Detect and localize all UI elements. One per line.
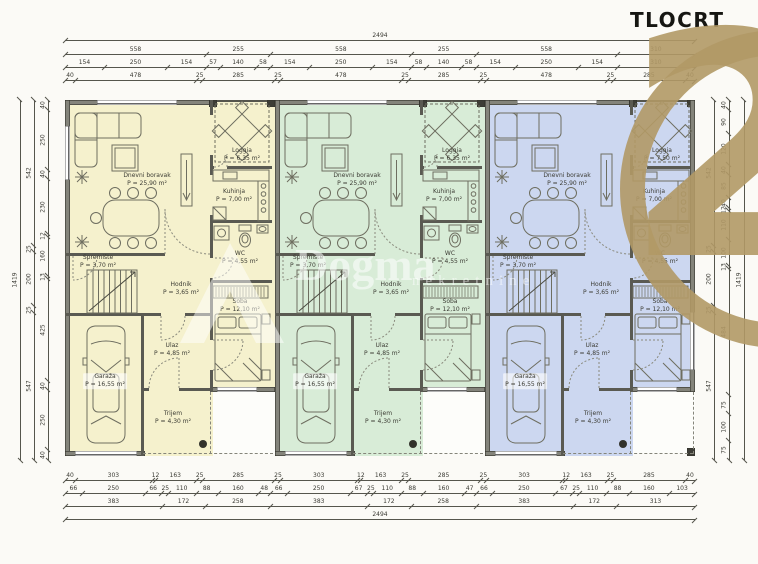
dimension-segment: 57: [206, 57, 220, 68]
sofa-icon: [285, 113, 351, 167]
room-area: P = 3,70 m²: [290, 262, 326, 269]
room-name: Dnevni boravak: [543, 172, 590, 180]
dimension-label: 303: [280, 472, 357, 479]
room-label-garaza: GaražaP = 16,55 m²: [503, 373, 547, 389]
dimension-column: 5422520025547: [24, 100, 35, 460]
dimension-label: 1419: [736, 272, 743, 287]
dimension-column: 5422520025547: [704, 100, 715, 460]
room-area: P = 25,90 m²: [547, 180, 587, 187]
dimension-segment: 303: [280, 470, 357, 481]
dimension-label: 75: [721, 446, 728, 454]
dimension-label: 547: [706, 381, 713, 392]
floor-plan-sheet: TLOCRT: [0, 0, 758, 564]
dimension-label: 172: [573, 498, 616, 505]
room-area: P = 25,90 m²: [127, 180, 167, 187]
dimension-segment: 478: [280, 70, 401, 81]
dimension-segment: 285: [408, 70, 480, 81]
room-area: P = 4,55 m²: [432, 258, 468, 265]
plant-icon: [495, 235, 509, 249]
room-label-loggia: LoggiaP = 7,50 m²: [644, 147, 680, 163]
dimension-segment: 160: [38, 237, 49, 275]
dimension-label: 100: [721, 422, 728, 433]
dimension-label: 172: [367, 498, 410, 505]
room-label-soba: SobaP = 12,10 m²: [220, 298, 260, 314]
dimension-label: 285: [613, 72, 685, 79]
dimension-label: 484: [721, 326, 728, 337]
dimension-label: 140: [426, 59, 461, 66]
dimension-label: 40: [40, 451, 47, 459]
bed-icon: [215, 314, 270, 381]
dimension-label: 285: [202, 72, 274, 79]
unit-c: Dnevni boravakP = 25,90 m²LoggiaP = 7,50…: [485, 100, 695, 460]
dimension-label: 110: [168, 485, 196, 492]
room-name: Soba: [640, 298, 680, 306]
dimension-segment: 90: [719, 110, 730, 133]
dimension-label: 258: [205, 498, 270, 505]
wardrobe-icon: [213, 286, 268, 298]
dimension-segment: 40: [65, 470, 75, 481]
dimension-label: 163: [155, 472, 196, 479]
sofa-icon: [495, 113, 561, 167]
dimension-label: 425: [40, 324, 47, 335]
dimension-segment: 66: [145, 483, 162, 494]
dimension-segment: 160: [423, 483, 463, 494]
room-label-kuhinja: KuhinjaP = 7,00 m²: [426, 188, 462, 204]
dimension-segment: 100: [719, 240, 730, 266]
dimension-label: 154: [65, 59, 104, 66]
dimension-row: 6625066251108816048662506725110881604766…: [65, 483, 695, 494]
dimension-segment: 88: [606, 483, 628, 494]
dimension-segment: 285: [408, 470, 480, 481]
dimension-label: 258: [411, 498, 476, 505]
dimension-label: 250: [40, 134, 47, 145]
plant-icon: [75, 170, 89, 184]
dimension-label: 250: [104, 59, 167, 66]
room-area: P = 4,85 m²: [574, 350, 610, 357]
dining-table-icon: [91, 188, 160, 249]
bed-icon: [425, 314, 480, 381]
dimension-label: 58: [411, 59, 426, 66]
dimension-row: 383172258383172258383172313: [65, 496, 695, 507]
dimension-segment: 66: [65, 483, 82, 494]
room-name: Soba: [220, 298, 260, 306]
dimension-label: 85: [721, 183, 728, 191]
stairs-icon: [297, 270, 347, 313]
dimension-column: 402504023012160134254025040: [38, 100, 49, 460]
room-area: P = 4,55 m²: [222, 258, 258, 265]
dimension-segment: 285: [613, 70, 685, 81]
dimension-label: 250: [287, 485, 350, 492]
dimension-segment: 172: [162, 496, 205, 507]
dimension-label: 40: [685, 472, 695, 479]
dimension-segment: 85: [719, 175, 730, 197]
dimension-label: 230: [40, 201, 47, 212]
room-area: P = 7,50 m²: [644, 155, 680, 162]
dimension-label: 303: [486, 472, 563, 479]
room-label-dnevni-boravak: Dnevni boravakP = 25,90 m²: [333, 172, 380, 188]
room-name: WC: [642, 250, 678, 258]
room-label-ulaz: UlazP = 4,85 m²: [364, 342, 400, 358]
room-name: Kuhinja: [636, 188, 672, 196]
dimension-segment: 383: [65, 496, 162, 507]
dimension-label: 103: [669, 485, 695, 492]
dimension-segment: 285: [202, 470, 274, 481]
dimension-label: 110: [373, 485, 401, 492]
dimension-segment: 200: [24, 252, 35, 306]
room-area: P = 12,10 m²: [430, 306, 470, 313]
room-name: Ulaz: [364, 342, 400, 350]
dimension-label: 285: [613, 472, 685, 479]
dimension-row: 2494: [65, 509, 695, 520]
fireplace-icon: [181, 154, 192, 206]
dimension-segment: 310: [617, 44, 695, 55]
dimension-label: 542: [706, 167, 713, 178]
dimension-segment: 310: [617, 57, 695, 68]
dimension-segment: 163: [360, 470, 401, 481]
dimension-label: 88: [401, 485, 423, 492]
washing-machine-icon: [424, 226, 439, 240]
room-label-loggia: LoggiaP = 6,35 m²: [224, 147, 260, 163]
dimension-segment: 230: [38, 179, 49, 234]
toilet-icon: [239, 225, 251, 247]
dimension-label: 558: [65, 46, 206, 53]
dimension-segment: 66: [270, 483, 287, 494]
dimension-segment: 250: [515, 57, 578, 68]
room-label-spremiste: SpremišteP = 3,70 m²: [500, 254, 536, 270]
room-label-wc: WCP = 4,55 m²: [222, 250, 258, 266]
room-area: P = 7,00 m²: [426, 196, 462, 203]
room-label-trijem: TrijemP = 4,30 m²: [575, 410, 611, 426]
dimension-segment: 285: [613, 470, 685, 481]
room-area: P = 3,65 m²: [163, 289, 199, 296]
dimension-label: 88: [606, 485, 628, 492]
dimension-segment: 154: [167, 57, 206, 68]
plant-icon: [285, 170, 299, 184]
dimension-label: 250: [82, 485, 145, 492]
dimension-label: 383: [270, 498, 367, 505]
coffee-table-icon: [322, 145, 348, 171]
toilet-icon: [449, 225, 461, 247]
room-area: P = 4,85 m²: [364, 350, 400, 357]
dimension-label: 285: [202, 472, 274, 479]
dimension-label: 558: [476, 46, 617, 53]
room-label-dnevni-boravak: Dnevni boravakP = 25,90 m²: [543, 172, 590, 188]
dimension-label: 250: [492, 485, 555, 492]
room-label-hodnik: HodnikP = 3,65 m²: [583, 281, 619, 297]
dimension-segment: 110: [719, 211, 730, 240]
dimension-segment: 75: [719, 441, 730, 461]
dimension-segment: 40: [685, 470, 695, 481]
dimension-segment: 154: [372, 57, 411, 68]
room-label-wc: WCP = 4,55 m²: [432, 250, 468, 266]
dimension-segment: 547: [24, 313, 35, 460]
dimension-label: 163: [565, 472, 606, 479]
dimension-label: 310: [617, 46, 695, 53]
dimension-label: 58: [461, 59, 476, 66]
room-label-wc: WCP = 4,55 m²: [642, 250, 678, 266]
dimension-segment: 2494: [65, 30, 695, 41]
dimension-segment: 172: [573, 496, 616, 507]
room-name: Trijem: [575, 410, 611, 418]
fireplace-icon: [601, 154, 612, 206]
room-label-kuhinja: KuhinjaP = 7,00 m²: [216, 188, 252, 204]
room-name: Trijem: [365, 410, 401, 418]
room-name: Spremište: [80, 254, 116, 262]
dimension-label: 2494: [65, 32, 695, 39]
room-area: P = 6,35 m²: [434, 155, 470, 162]
room-area: P = 25,90 m²: [337, 180, 377, 187]
dimension-segment: 250: [492, 483, 555, 494]
dimension-label: 66: [270, 485, 287, 492]
dimension-label: 48: [258, 485, 270, 492]
room-name: WC: [432, 250, 468, 258]
dimension-segment: 250: [82, 483, 145, 494]
dimension-label: 160: [423, 485, 463, 492]
dimension-row: 40478252852547825285254782528540: [65, 70, 695, 81]
dimension-segment: 110: [168, 483, 196, 494]
room-name: Ulaz: [574, 342, 610, 350]
plant-icon: [75, 235, 89, 249]
dimension-row: 2494: [65, 30, 695, 41]
dimension-segment: 250: [309, 57, 372, 68]
dimension-segment: 163: [155, 470, 196, 481]
room-area: P = 3,70 m²: [80, 262, 116, 269]
room-name: Garaža: [505, 373, 545, 381]
unit-b: Dnevni boravakP = 25,90 m²LoggiaP = 6,35…: [275, 100, 485, 460]
dimension-segment: 47: [464, 483, 476, 494]
room-label-kuhinja: KuhinjaP = 7,00 m²: [636, 188, 672, 204]
dimension-label: 57: [206, 59, 220, 66]
dimension-label: 160: [40, 251, 47, 262]
room-label-trijem: TrijemP = 4,30 m²: [365, 410, 401, 426]
dimension-segment: 258: [205, 496, 270, 507]
room-name: Ulaz: [154, 342, 190, 350]
dimension-segment: 303: [486, 470, 563, 481]
dimension-label: 40: [65, 72, 75, 79]
room-name: Garaža: [85, 373, 125, 381]
dimension-segment: 140: [220, 57, 255, 68]
dimension-segment: 542: [24, 100, 35, 246]
dimension-label: 2494: [65, 511, 695, 518]
dimension-segment: 383: [270, 496, 367, 507]
dimension-label: 285: [408, 472, 480, 479]
dimension-label: 478: [486, 72, 607, 79]
dimension-segment: 88: [196, 483, 218, 494]
dimension-label: 383: [476, 498, 573, 505]
dimension-label: 160: [218, 485, 258, 492]
unit-a: Dnevni boravakP = 25,90 m²LoggiaP = 6,35…: [65, 100, 275, 460]
dimension-label: 542: [26, 167, 33, 178]
room-area: P = 3,65 m²: [373, 289, 409, 296]
dimension-label: 47: [464, 485, 476, 492]
room-name: Dnevni boravak: [333, 172, 380, 180]
dimension-column: 1419: [734, 100, 745, 460]
dimension-segment: 558: [476, 44, 617, 55]
dimension-label: 40: [685, 72, 695, 79]
dimension-label: 478: [280, 72, 401, 79]
sink-icon: [467, 225, 478, 233]
dimension-segment: 40: [38, 450, 49, 460]
room-area: P = 6,35 m²: [224, 155, 260, 162]
dimension-label: 163: [360, 472, 401, 479]
room-name: Spremište: [290, 254, 326, 262]
dimension-label: 66: [65, 485, 82, 492]
dimension-segment: 250: [287, 483, 350, 494]
dining-table-icon: [511, 188, 580, 249]
dimension-label: 66: [145, 485, 162, 492]
dimension-label: 75: [721, 401, 728, 409]
dimension-segment: 58: [411, 57, 426, 68]
room-area: P = 12,10 m²: [220, 306, 260, 313]
dimension-label: 120: [721, 144, 728, 155]
room-area: P = 4,30 m²: [575, 418, 611, 425]
room-name: Hodnik: [583, 281, 619, 289]
bed-icon: [635, 314, 690, 381]
dimension-segment: 58: [461, 57, 476, 68]
room-label-ulaz: UlazP = 4,85 m²: [154, 342, 190, 358]
dimension-segment: 200: [704, 252, 715, 306]
fireplace-icon: [391, 154, 402, 206]
room-area: P = 4,55 m²: [642, 258, 678, 265]
dimension-segment: 250: [38, 390, 49, 450]
dimension-segment: 160: [629, 483, 669, 494]
room-area: P = 16,55 m²: [295, 381, 335, 388]
dimension-label: 250: [309, 59, 372, 66]
dimension-row: 558255558255558310: [65, 44, 695, 55]
dimension-label: 154: [578, 59, 617, 66]
dimension-segment: 172: [367, 496, 410, 507]
room-area: P = 4,30 m²: [365, 418, 401, 425]
dimension-segment: 88: [401, 483, 423, 494]
dimension-label: 383: [65, 498, 162, 505]
dimension-segment: 100: [719, 414, 730, 440]
dimension-segment: 255: [411, 44, 475, 55]
dimension-label: 154: [167, 59, 206, 66]
room-label-spremiste: SpremišteP = 3,70 m²: [80, 254, 116, 270]
stairs-icon: [507, 270, 557, 313]
room-name: Hodnik: [373, 281, 409, 289]
dimension-label: 200: [26, 274, 33, 285]
dimension-label: 58: [256, 59, 271, 66]
dimension-label: 250: [515, 59, 578, 66]
dimension-label: 478: [75, 72, 196, 79]
sink-icon: [677, 225, 688, 233]
dimension-segment: 547: [704, 313, 715, 460]
dimension-label: 1419: [12, 272, 19, 287]
dimension-segment: 154: [578, 57, 617, 68]
room-name: Trijem: [155, 410, 191, 418]
room-name: Kuhinja: [426, 188, 462, 196]
dimension-segment: 140: [426, 57, 461, 68]
dimension-segment: 48: [258, 483, 270, 494]
dimension-label: 310: [617, 59, 695, 66]
room-label-garaza: GaražaP = 16,55 m²: [83, 373, 127, 389]
dimension-segment: 558: [270, 44, 411, 55]
dining-table-icon: [301, 188, 370, 249]
dimension-label: 66: [476, 485, 493, 492]
dimension-row: 1542501545714058154250154581405815425015…: [65, 57, 695, 68]
dimension-segment: 2494: [65, 509, 695, 520]
room-area: P = 4,85 m²: [154, 350, 190, 357]
room-label-garaza: GaražaP = 16,55 m²: [293, 373, 337, 389]
coffee-table-icon: [532, 145, 558, 171]
dimension-segment: 110: [373, 483, 401, 494]
room-name: Loggia: [434, 147, 470, 155]
room-name: Soba: [430, 298, 470, 306]
room-area: P = 4,30 m²: [155, 418, 191, 425]
dimension-segment: 40: [65, 70, 75, 81]
dimension-segment: 163: [565, 470, 606, 481]
stairs-icon: [87, 270, 137, 313]
room-area: P = 7,00 m²: [636, 196, 672, 203]
dimension-label: 558: [270, 46, 411, 53]
dimension-label: 255: [411, 46, 475, 53]
dimension-segment: 154: [476, 57, 515, 68]
dimension-segment: 383: [476, 496, 573, 507]
room-name: Loggia: [644, 147, 680, 155]
page-title: TLOCRT: [630, 8, 725, 32]
dimension-label: 154: [372, 59, 411, 66]
room-area: P = 3,65 m²: [583, 289, 619, 296]
dimension-segment: 154: [65, 57, 104, 68]
dimension-label: 110: [579, 485, 607, 492]
dimension-label: 100: [721, 247, 728, 258]
toilet-icon: [659, 225, 671, 247]
dimension-segment: 250: [38, 110, 49, 170]
dimension-segment: 285: [202, 70, 274, 81]
dimension-label: 313: [616, 498, 695, 505]
dimension-segment: 255: [206, 44, 270, 55]
washing-machine-icon: [214, 226, 229, 240]
dimension-segment: 478: [486, 70, 607, 81]
dimension-segment: 154: [270, 57, 309, 68]
dimension-segment: 558: [65, 44, 206, 55]
dimension-segment: 425: [38, 279, 49, 381]
dimension-label: 255: [206, 46, 270, 53]
dimension-row: 4030312163252852530312163252852530312163…: [65, 470, 695, 481]
room-label-dnevni-boravak: Dnevni boravakP = 25,90 m²: [123, 172, 170, 188]
sink-icon: [257, 225, 268, 233]
room-label-ulaz: UlazP = 4,85 m²: [574, 342, 610, 358]
room-label-hodnik: HodnikP = 3,65 m²: [373, 281, 409, 297]
room-area: P = 12,10 m²: [640, 306, 680, 313]
room-area: P = 16,55 m²: [505, 381, 545, 388]
dimension-label: 154: [476, 59, 515, 66]
dimension-segment: 66: [476, 483, 493, 494]
dimension-segment: 1419: [734, 100, 745, 460]
plant-icon: [495, 170, 509, 184]
room-label-spremiste: SpremišteP = 3,70 m²: [290, 254, 326, 270]
room-name: Dnevni boravak: [123, 172, 170, 180]
room-area: P = 16,55 m²: [85, 381, 125, 388]
dimension-label: 90: [721, 118, 728, 126]
dimension-label: 154: [270, 59, 309, 66]
dimension-label: 67: [350, 485, 367, 492]
wardrobe-icon: [633, 286, 688, 298]
room-name: Hodnik: [163, 281, 199, 289]
dimension-segment: 58: [256, 57, 271, 68]
dimension-segment: 120: [719, 134, 730, 165]
room-label-loggia: LoggiaP = 6,35 m²: [434, 147, 470, 163]
wardrobe-icon: [423, 286, 478, 298]
dimension-label: 88: [196, 485, 218, 492]
dimension-label: 40: [65, 472, 75, 479]
room-label-soba: SobaP = 12,10 m²: [640, 298, 680, 314]
dimension-segment: 1419: [10, 100, 21, 460]
sofa-icon: [75, 113, 141, 167]
room-label-hodnik: HodnikP = 3,65 m²: [163, 281, 199, 297]
dimension-segment: 313: [616, 496, 695, 507]
